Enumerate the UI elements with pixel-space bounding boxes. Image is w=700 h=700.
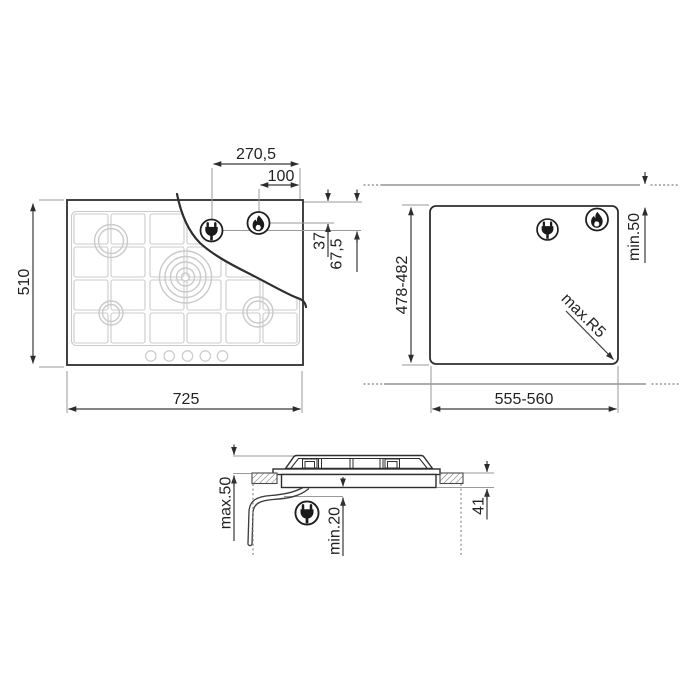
cutout-view: 478-482 555-560 min.50 max.R5 [364, 172, 680, 413]
dim-worktop-thickness-label: max.50 [218, 477, 235, 530]
plug-icon [537, 219, 558, 240]
plug-icon [295, 501, 318, 524]
knob [164, 351, 174, 361]
worktop-hatch-right [440, 473, 463, 484]
grate-cell [74, 313, 108, 343]
dim-bottom-clearance-label: min.20 [327, 507, 344, 555]
grate-cell [187, 313, 221, 343]
grate-cell [150, 313, 184, 343]
cutout-outline [430, 206, 618, 364]
hob-top-view: 270,5 100 37 67,5 510 725 [16, 146, 362, 413]
grate-cell [111, 247, 145, 277]
cutaway-region [177, 194, 307, 307]
dim-cutout-depth-label: 478-482 [394, 256, 411, 315]
hob-rim [273, 469, 440, 475]
grate-cell [150, 214, 184, 244]
burner-right-inner [247, 301, 269, 323]
grate-cell [111, 313, 145, 343]
hob-tub [282, 475, 437, 488]
dim-cutout-width-label: 555-560 [495, 391, 554, 408]
dim-gas-depth-label: 37 [312, 232, 329, 250]
grate-cell [74, 214, 108, 244]
grate-cell [226, 280, 260, 310]
grate-cell [74, 280, 108, 310]
grate-cell [74, 247, 108, 277]
diagram-canvas: 270,5 100 37 67,5 510 725 [0, 0, 700, 700]
section-view: max.50 min.20 41 [218, 445, 495, 557]
plug-icon [201, 220, 223, 242]
grate-cell [226, 313, 260, 343]
knob [146, 351, 156, 361]
dim-rear-clearance-label: min.50 [626, 213, 643, 261]
knob [182, 351, 192, 361]
worktop-hatch-left [252, 473, 277, 484]
dim-overall-depth-label: 510 [16, 269, 33, 296]
knob [200, 351, 210, 361]
dim-electrical-offset-label: 270,5 [236, 146, 276, 163]
dim-gas-offset-label: 100 [268, 168, 295, 185]
dim-built-in-depth-label: 41 [471, 497, 488, 515]
flame-icon [586, 209, 608, 231]
installation-diagram: 270,5 100 37 67,5 510 725 [0, 0, 700, 700]
knob [217, 351, 227, 361]
dim-overall-width-label: 725 [173, 391, 200, 408]
flame-icon [248, 212, 270, 234]
dim-electrical-depth-label: 67,5 [329, 238, 346, 269]
